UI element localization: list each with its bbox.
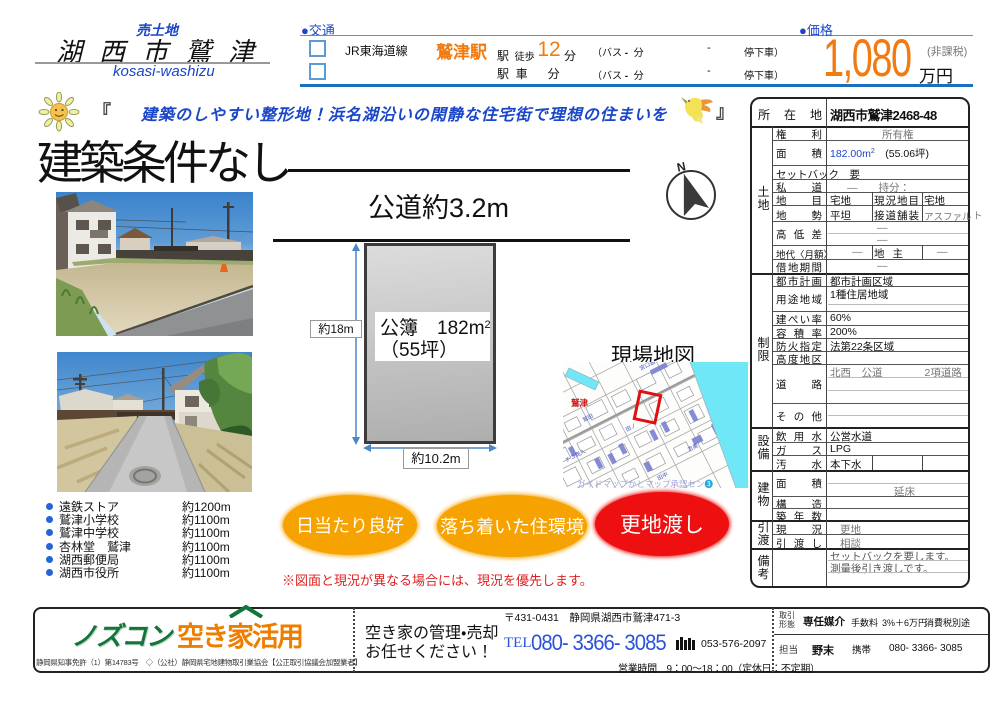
svg-text:N: N [676,159,687,174]
svg-text:鷲津: 鷲津 [570,398,589,408]
